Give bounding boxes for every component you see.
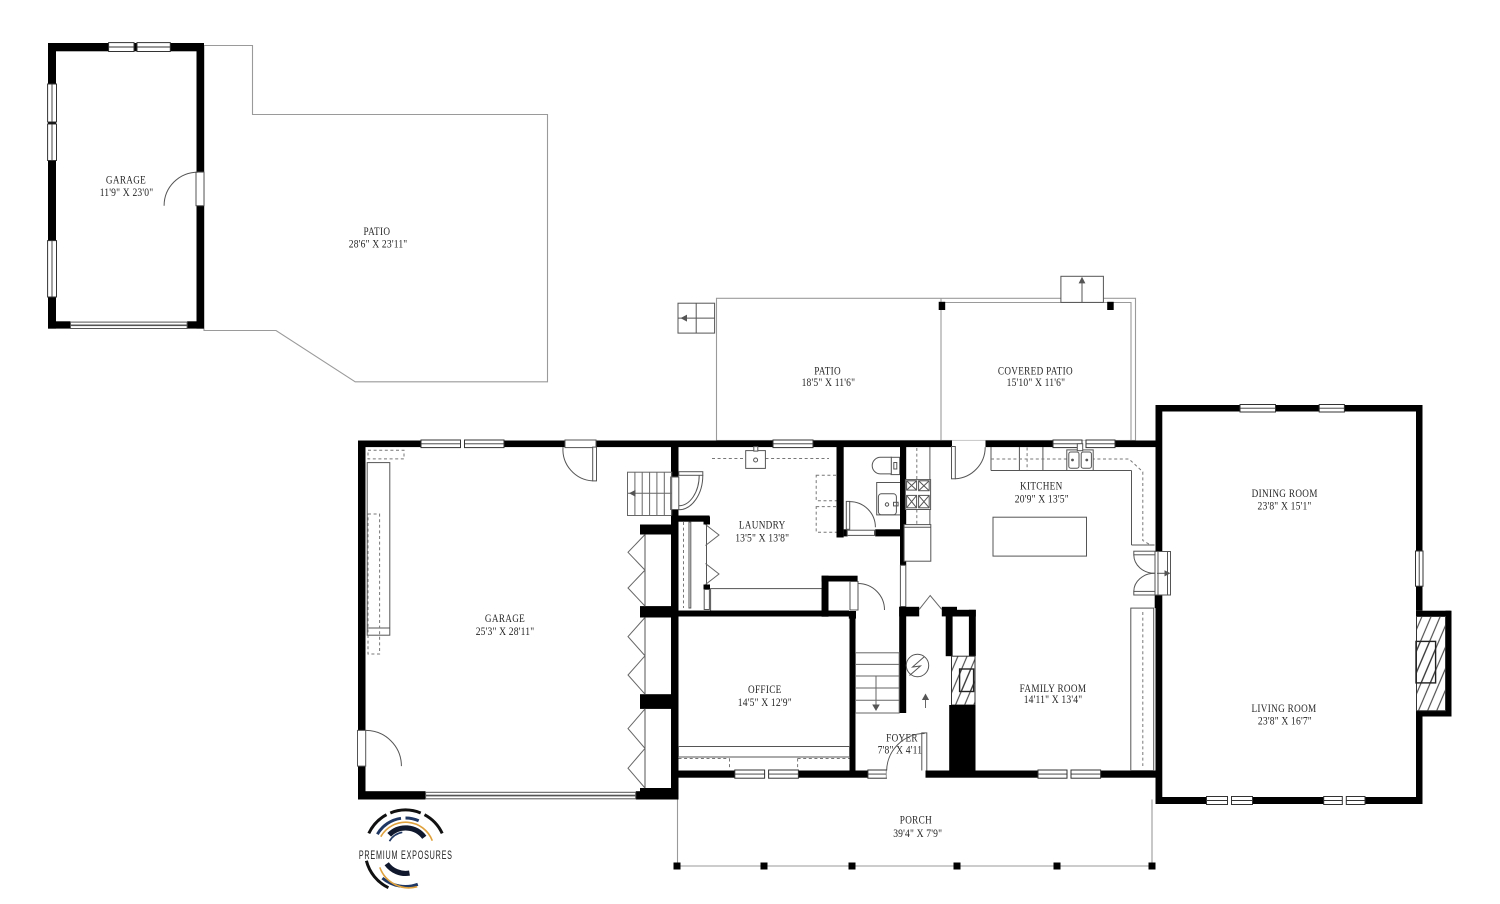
svg-text:18'5" X 11'6": 18'5" X 11'6"	[802, 377, 856, 389]
svg-text:COVERED PATIO: COVERED PATIO	[998, 365, 1073, 377]
svg-text:13'5" X 13'8": 13'5" X 13'8"	[735, 533, 789, 545]
svg-text:FOYER: FOYER	[886, 732, 918, 744]
svg-text:LAUNDRY: LAUNDRY	[739, 520, 786, 532]
svg-text:GARAGE: GARAGE	[485, 613, 525, 625]
svg-text:14'11" X 13'4": 14'11" X 13'4"	[1024, 694, 1083, 706]
svg-text:DINING ROOM: DINING ROOM	[1252, 488, 1318, 500]
svg-text:PATIO: PATIO	[364, 226, 391, 238]
svg-text:25'3" X 28'11": 25'3" X 28'11"	[476, 626, 535, 638]
svg-text:7'8" X 4'11": 7'8" X 4'11"	[878, 745, 927, 757]
svg-text:28'6" X 23'11": 28'6" X 23'11"	[349, 239, 408, 251]
svg-text:PORCH: PORCH	[900, 814, 932, 826]
svg-text:20'9" X 13'5": 20'9" X 13'5"	[1015, 494, 1069, 506]
svg-text:14'5" X 12'9": 14'5" X 12'9"	[738, 697, 792, 709]
svg-text:11'9" X 23'0": 11'9" X 23'0"	[100, 187, 154, 199]
svg-text:PATIO: PATIO	[814, 365, 841, 377]
svg-text:LIVING ROOM: LIVING ROOM	[1251, 703, 1316, 715]
svg-text:39'4" X 7'9": 39'4" X 7'9"	[893, 828, 942, 840]
svg-text:PREMIUM EXPOSURES: PREMIUM EXPOSURES	[359, 849, 453, 862]
svg-text:KITCHEN: KITCHEN	[1020, 481, 1063, 493]
svg-text:23'8" X 16'7": 23'8" X 16'7"	[1258, 716, 1312, 728]
svg-text:15'10" X 11'6": 15'10" X 11'6"	[1007, 377, 1066, 389]
svg-text:GARAGE: GARAGE	[106, 175, 146, 187]
svg-text:23'8" X 15'1": 23'8" X 15'1"	[1258, 501, 1312, 513]
svg-text:OFFICE: OFFICE	[748, 684, 782, 696]
